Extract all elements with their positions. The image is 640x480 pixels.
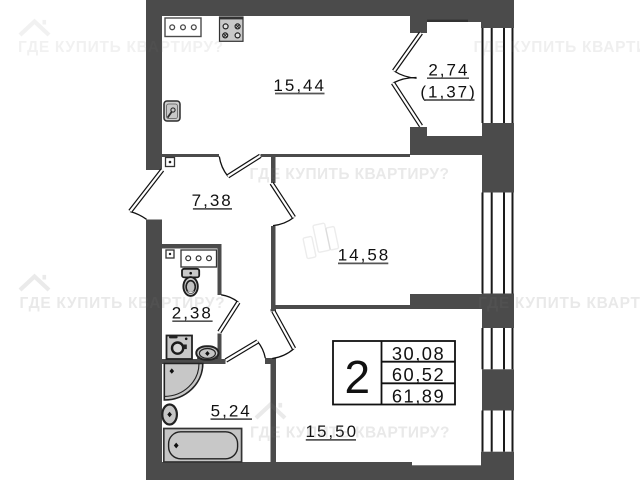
svg-text:7,38: 7,38 xyxy=(192,191,233,210)
svg-text:(1,37): (1,37) xyxy=(420,82,476,101)
svg-text:ГДЕ КУПИТЬ КВАРТИРУ?: ГДЕ КУПИТЬ КВАРТИРУ? xyxy=(20,295,226,312)
svg-text:5,24: 5,24 xyxy=(211,401,252,420)
svg-text:60,52: 60,52 xyxy=(392,364,445,385)
svg-text:15,44: 15,44 xyxy=(273,76,326,95)
svg-text:ГДЕ КУПИТЬ КВАРТИРУ?: ГДЕ КУПИТЬ КВАРТИРУ? xyxy=(474,39,640,56)
svg-text:2,74: 2,74 xyxy=(428,61,469,80)
svg-text:ГДЕ КУПИТЬ КВАРТИРУ?: ГДЕ КУПИТЬ КВАРТИРУ? xyxy=(18,39,224,56)
svg-text:30,08: 30,08 xyxy=(392,343,445,364)
svg-text:61,89: 61,89 xyxy=(392,385,445,406)
svg-text:ГДЕ КУПИТЬ КВАРТИРУ?: ГДЕ КУПИТЬ КВАРТИРУ? xyxy=(478,295,640,312)
svg-text:14,58: 14,58 xyxy=(338,246,391,265)
svg-text:ГДЕ КУПИТЬ КВАРТИРУ?: ГДЕ КУПИТЬ КВАРТИРУ? xyxy=(250,425,450,442)
svg-text:ГДЕ КУПИТЬ КВАРТИРУ?: ГДЕ КУПИТЬ КВАРТИРУ? xyxy=(250,166,450,183)
svg-text:2: 2 xyxy=(345,351,371,403)
